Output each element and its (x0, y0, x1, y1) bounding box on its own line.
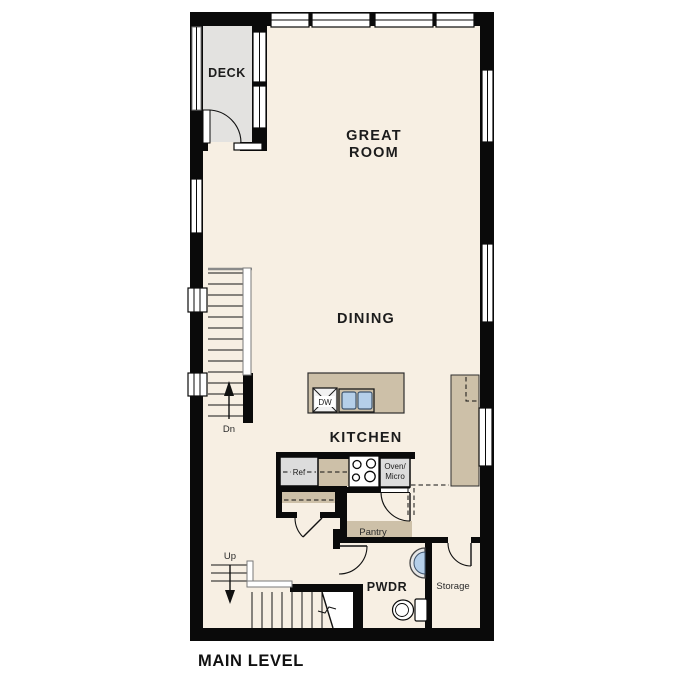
dishwasher-label: DW (318, 398, 332, 407)
stairs-down-label: Dn (223, 424, 235, 435)
pwdr-label: PWDR (367, 580, 408, 594)
kitchen-label: KITCHEN (330, 430, 403, 446)
oven-label-line2: Micro (385, 472, 405, 481)
storage-label: Storage (436, 581, 469, 592)
dishwasher: DW (313, 388, 337, 412)
wall-closet-front-right (320, 512, 341, 518)
pantry-label: Pantry (359, 527, 387, 538)
toilet (393, 599, 428, 621)
wall-stair-right (353, 584, 363, 628)
window-left-small-2 (188, 373, 207, 396)
great-room-label-line1: GREAT (346, 128, 402, 144)
wall-storage-jamb (471, 537, 480, 543)
window-left-small-1 (188, 288, 207, 312)
closet-shelf (282, 491, 340, 503)
wall-pwdr-door-jamb (333, 529, 340, 549)
oven-micro: Oven/ Micro (380, 458, 410, 487)
wall-closet-front-left (276, 512, 297, 518)
stairs-up-label: Up (224, 551, 236, 562)
cooktop (349, 456, 379, 487)
sink-basin (358, 392, 372, 409)
deck-door-leaf (203, 110, 210, 143)
wall-stair-bar (290, 584, 363, 592)
deck-label: DECK (208, 66, 246, 80)
sink-basin (342, 392, 356, 409)
oven-label-line1: Oven/ (384, 462, 406, 471)
wall-bottom (190, 628, 494, 641)
refrigerator-label: Ref (293, 468, 306, 477)
floor-plan: Dn Up (0, 0, 687, 687)
great-room-label-line2: ROOM (349, 145, 399, 161)
deck-door-sill (234, 143, 262, 150)
kitchen-sink (339, 389, 374, 412)
stairs-down-rail (243, 268, 251, 375)
plan-title: MAIN LEVEL (198, 652, 304, 670)
stairs-up-rail-horizontal (247, 581, 292, 587)
dining-label: DINING (337, 311, 395, 327)
wall-pantry-top (340, 487, 381, 493)
wall-pantry-left (340, 486, 347, 543)
wall-dnstair-stub (243, 373, 253, 423)
right-counter (451, 375, 479, 486)
floor-plan-page: Dn Up (0, 0, 687, 687)
wall-closet-mid (276, 486, 341, 492)
